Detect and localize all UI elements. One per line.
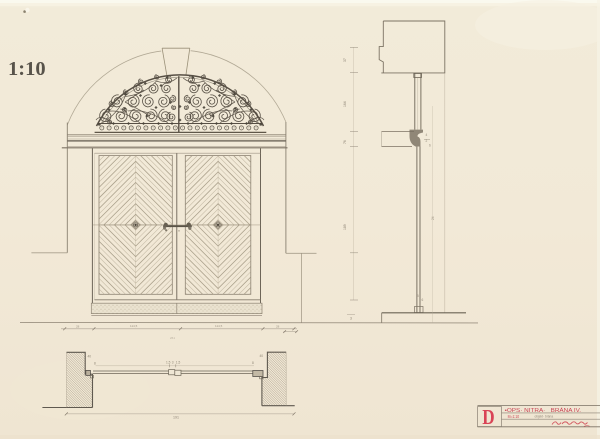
svg-text:189: 189 — [343, 224, 347, 230]
svg-text:28: 28 — [76, 324, 80, 328]
svg-text:40: 40 — [88, 355, 92, 359]
svg-text:1:10: 1:10 — [8, 58, 46, 80]
svg-text:objekt· brána: objekt· brána — [535, 414, 554, 418]
svg-text:6: 6 — [429, 144, 431, 148]
svg-text:D: D — [482, 405, 494, 429]
svg-text:1,5: 1,5 — [166, 360, 171, 364]
svg-text:3: 3 — [350, 317, 352, 321]
svg-text:164: 164 — [343, 101, 347, 107]
svg-text:8: 8 — [94, 361, 96, 365]
svg-text:37: 37 — [343, 58, 347, 62]
svg-text:4: 4 — [426, 133, 428, 137]
svg-text:M=1:10: M=1:10 — [508, 414, 520, 419]
svg-text:261: 261 — [170, 336, 175, 340]
svg-text:6: 6 — [422, 298, 424, 302]
svg-text:76: 76 — [343, 140, 347, 144]
svg-text:24: 24 — [431, 216, 435, 220]
svg-text:3: 3 — [172, 360, 174, 364]
svg-text:114,5: 114,5 — [215, 324, 223, 328]
svg-text:40: 40 — [260, 354, 264, 358]
svg-text:191: 191 — [173, 416, 179, 420]
svg-text:5: 5 — [417, 294, 419, 298]
svg-text:28: 28 — [276, 324, 280, 328]
svg-text:8: 8 — [252, 361, 254, 365]
svg-text:1,5: 1,5 — [176, 360, 181, 364]
svg-text:114,5: 114,5 — [130, 324, 138, 328]
